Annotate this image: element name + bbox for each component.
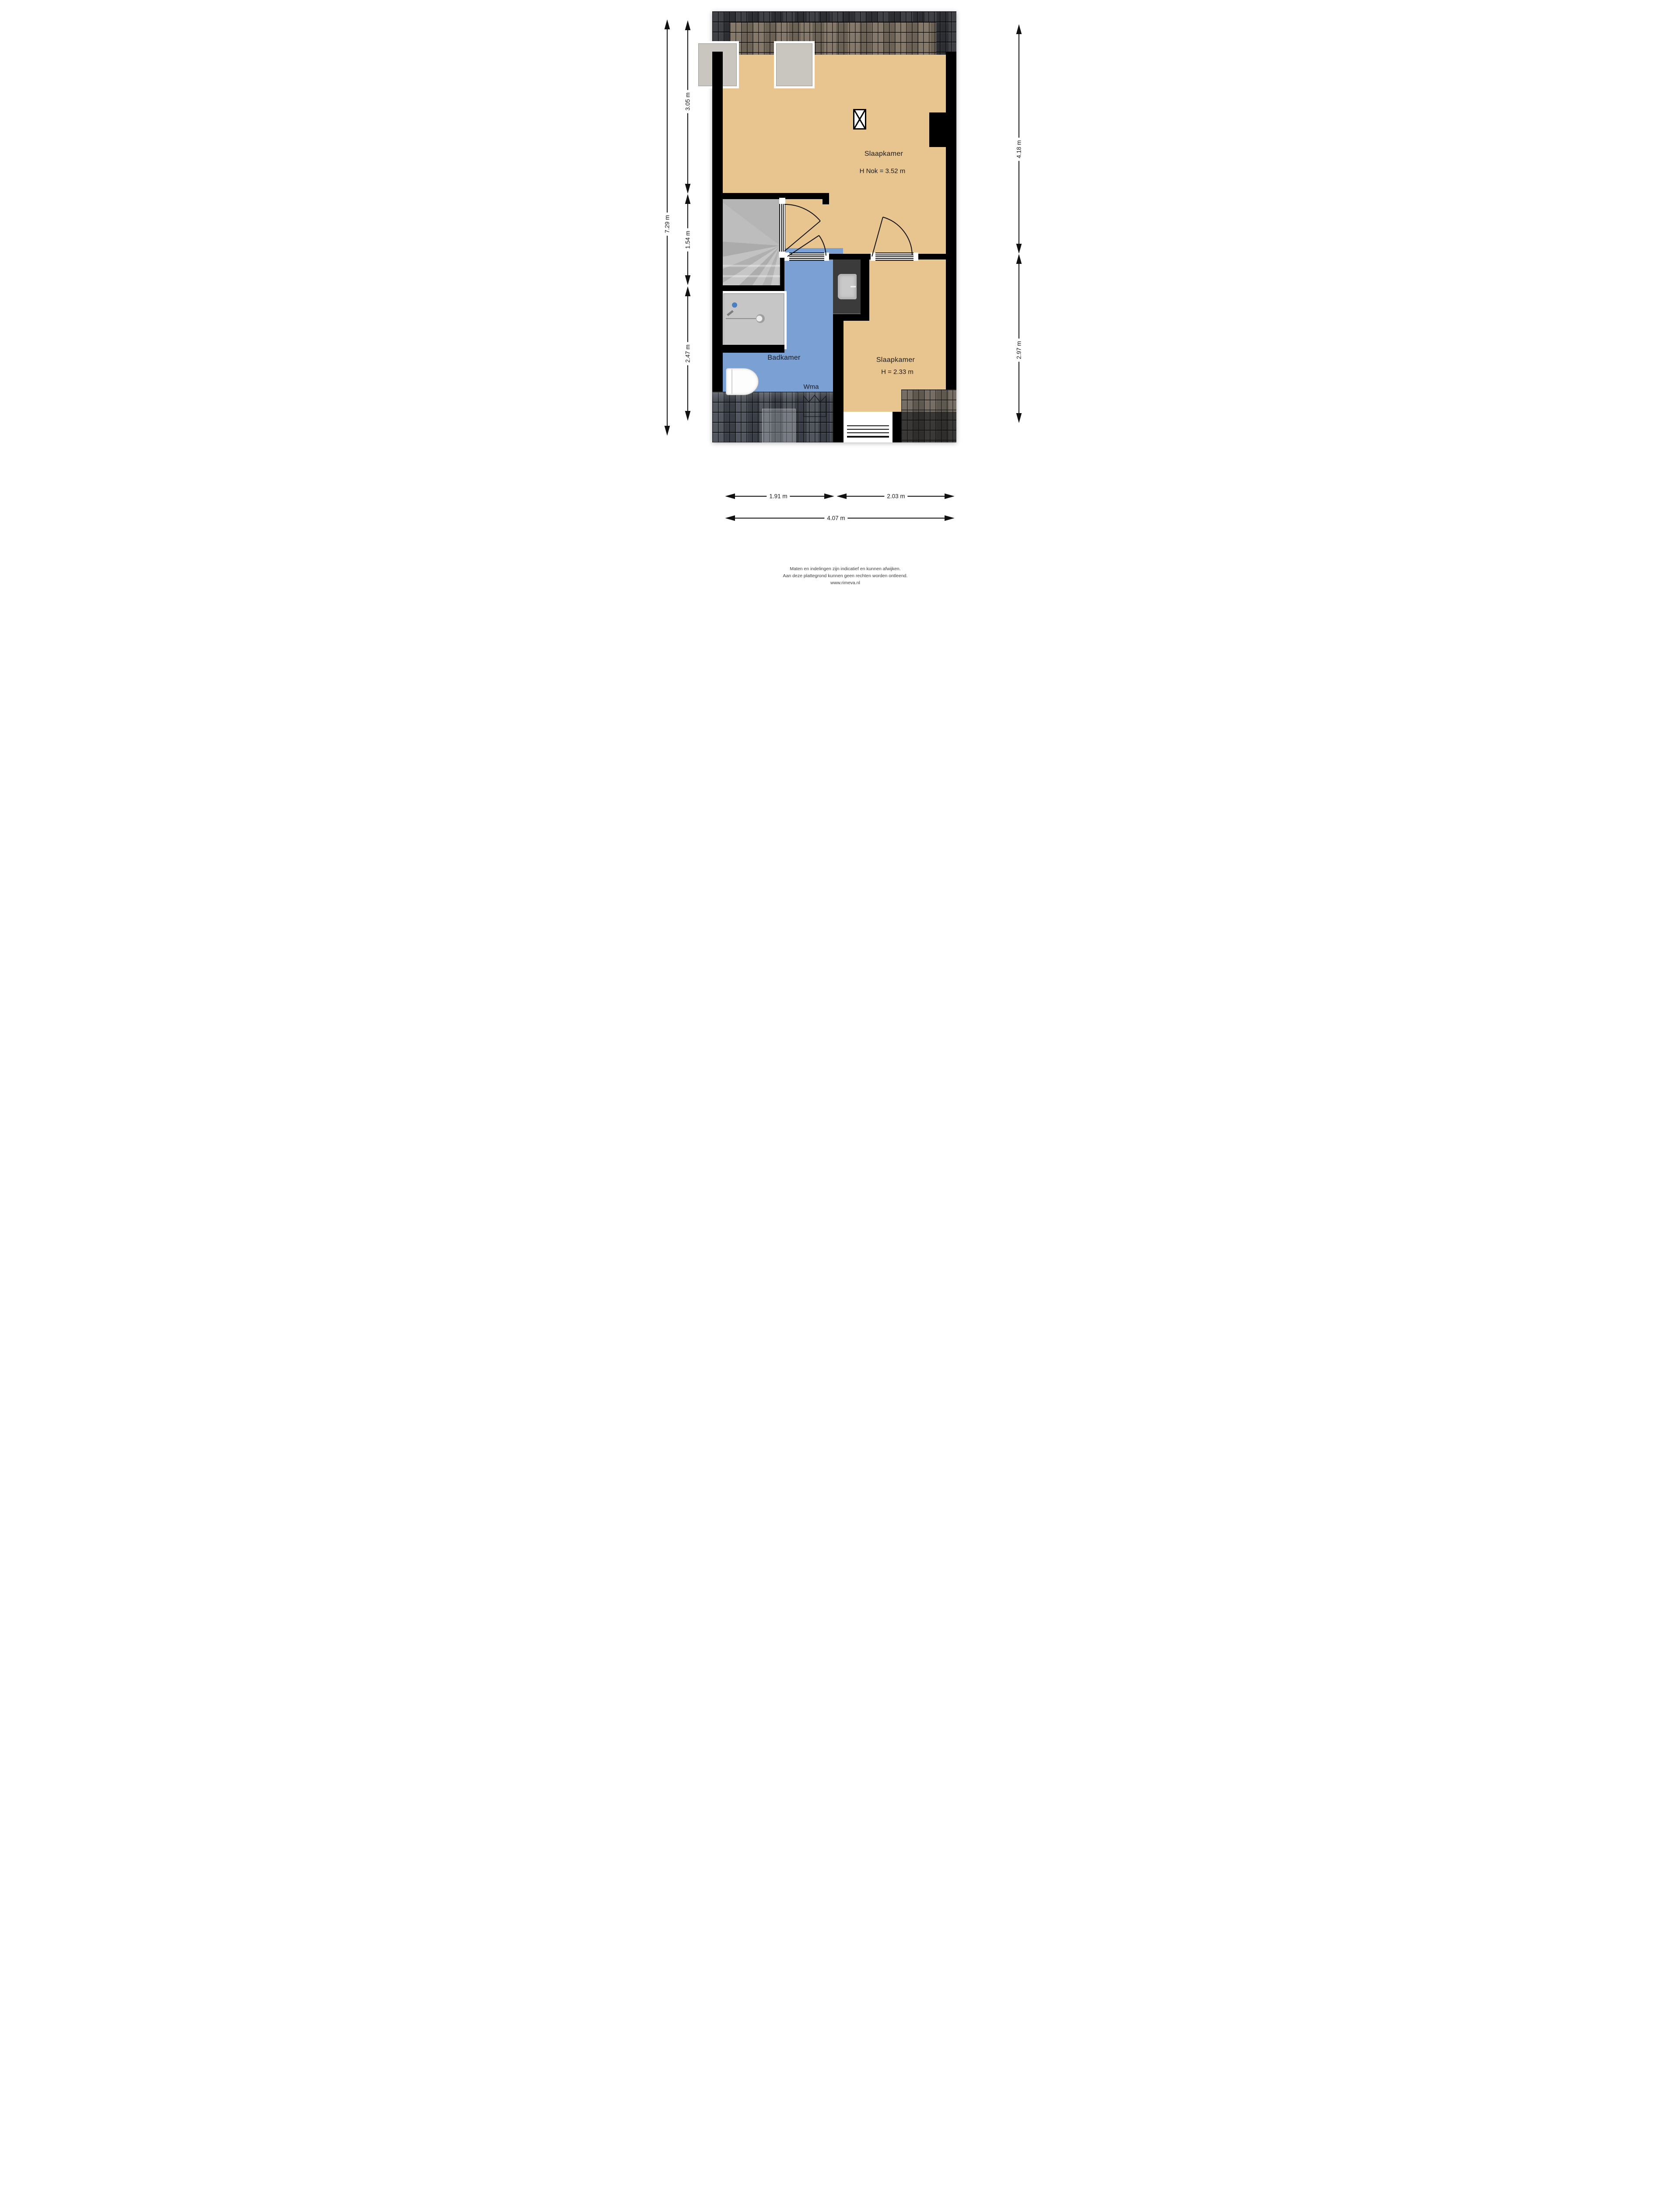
shower-arm-icon [726, 318, 757, 319]
wall-outer-left [712, 52, 723, 392]
floorplan-page: Slaapkamer H Nok = 3.52 m Badkamer Wma S… [630, 0, 1050, 594]
dim-bottom-left: 1.91 m [766, 493, 790, 500]
footer-disclaimer-line1: Maten en indelingen zijn indicatief en k… [790, 566, 900, 572]
dim-right-top: 4.18 m [1015, 137, 1023, 161]
wall-stair-top [712, 193, 829, 199]
shower-drain-icon [732, 302, 737, 308]
dim-right-bottom: 2.97 m [1015, 338, 1023, 361]
bedroom2-door-frame-lines [875, 252, 913, 261]
dim-left-total: 7.29 m [664, 212, 671, 235]
dim-bottom-total: 4.07 m [824, 515, 847, 522]
wma-label: Wma [804, 383, 819, 391]
dim-left-middle: 1.54 m [684, 228, 692, 251]
footer-disclaimer-line2: Aan deze plattegrond kunnen geen rechten… [783, 573, 908, 579]
washbasin [838, 274, 857, 299]
skylight-window-right [774, 41, 815, 88]
shower-head-icon [756, 314, 765, 323]
dormer-window-glazing [847, 425, 889, 438]
bathroom-label: Badkamer [767, 354, 800, 362]
bedroom1-height-note: H Nok = 3.52 m [860, 168, 906, 175]
wall-stair-top-stub [822, 199, 829, 204]
bedroom1-label: Slaapkamer [864, 150, 903, 158]
stair-door-frame [779, 198, 785, 258]
footer-website: www.rimeva.nl [830, 580, 860, 586]
dim-left-top: 3.05 m [684, 90, 692, 113]
bathroom-door-frame [784, 252, 829, 261]
bathroom-door-frame-lines [789, 252, 824, 261]
shower [721, 291, 787, 349]
roof-top-brown-field [730, 22, 936, 55]
duct-x-icon [853, 109, 866, 130]
bedroom2-door-frame [871, 252, 918, 261]
dim-bottom-right: 2.03 m [884, 493, 907, 500]
toilet [726, 368, 759, 395]
roof-bottom-right [901, 389, 956, 442]
wall-window-jamb [892, 412, 901, 442]
bedroom2-height-note: H = 2.33 m [881, 368, 913, 376]
wall-bedroom2-left [833, 321, 843, 442]
wall-below-shower [712, 345, 784, 353]
wall-doorlevel-right [918, 254, 946, 259]
wall-counter-right [861, 254, 869, 321]
wall-stair-bottom [712, 285, 784, 291]
wall-outer-right [946, 52, 956, 389]
roof-skylight-outline [762, 409, 796, 443]
dormer-window [843, 412, 892, 442]
wall-counter-foot [833, 314, 869, 321]
bedroom2-label: Slaapkamer [876, 356, 915, 364]
stair-door-frame-lines [779, 204, 785, 252]
stairs [723, 199, 780, 285]
roof-top [712, 11, 956, 55]
dim-left-bottom: 2.47 m [684, 342, 692, 365]
duct-shaft [929, 112, 956, 147]
